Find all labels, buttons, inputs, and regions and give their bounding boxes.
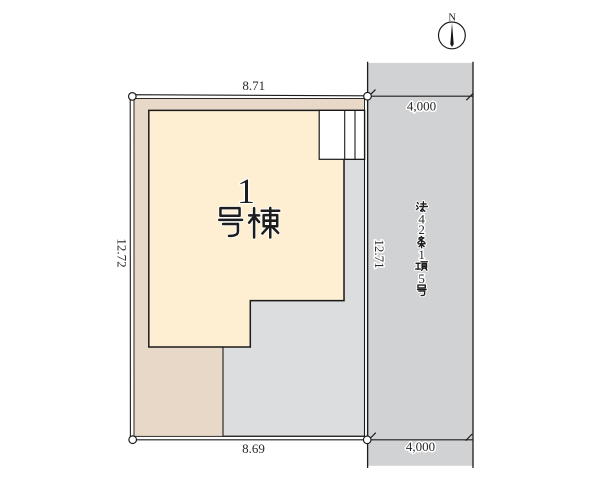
svg-text:1: 1 xyxy=(418,247,425,262)
svg-text:1: 1 xyxy=(237,171,255,211)
svg-text:8.69: 8.69 xyxy=(242,441,265,456)
svg-text:N: N xyxy=(448,12,456,23)
svg-text:8.71: 8.71 xyxy=(242,78,265,93)
svg-text:2: 2 xyxy=(418,222,425,237)
svg-text:4,000: 4,000 xyxy=(406,439,435,454)
svg-text:12.72: 12.72 xyxy=(114,238,129,267)
svg-text:4,000: 4,000 xyxy=(407,99,436,114)
svg-text:5: 5 xyxy=(418,271,425,286)
svg-text:12.71: 12.71 xyxy=(372,239,387,268)
